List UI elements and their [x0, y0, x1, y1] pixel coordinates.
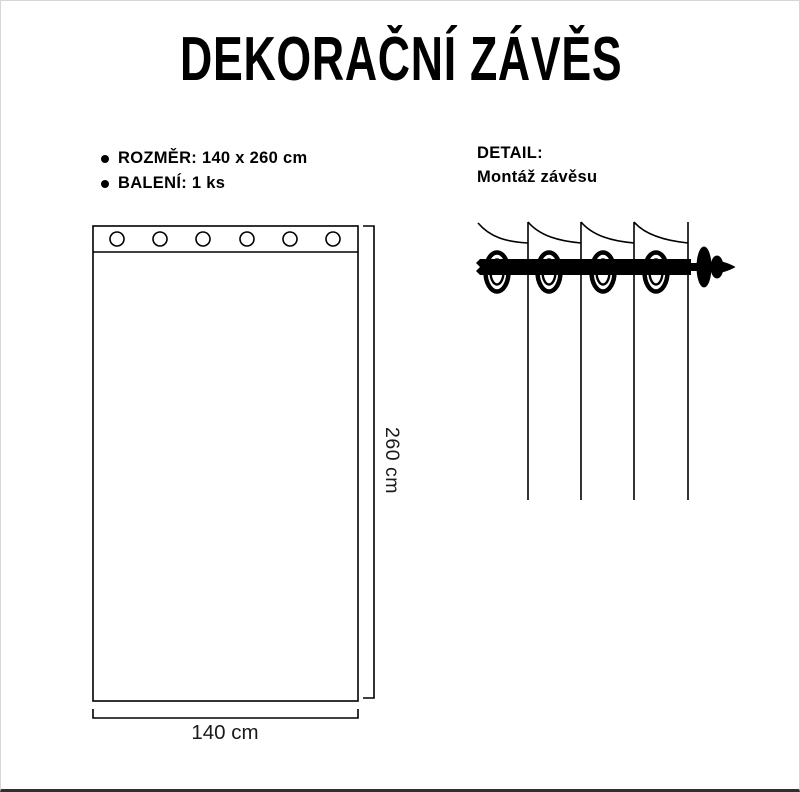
page-root: DEKORAČNÍ ZÁVĚS ROZMĚR: 140 x 260 cm BAL…	[0, 0, 800, 792]
grommet-hole-icon	[283, 232, 297, 246]
curtain-wave-segment	[634, 222, 688, 243]
width-dimension-bracket	[93, 709, 358, 718]
detail-heading-block: DETAIL: Montáž závěsu	[477, 144, 597, 187]
detail-heading: DETAIL:	[477, 144, 597, 163]
page-title-text: DEKORAČNÍ ZÁVĚS	[180, 27, 622, 93]
height-dimension-label: 260 cm	[380, 427, 403, 494]
grommet-hole-icon	[326, 232, 340, 246]
grommet-hole-icon	[110, 232, 124, 246]
detail-subheading: Montáž závěsu	[477, 168, 597, 187]
width-dimension-label: 140 cm	[145, 721, 305, 745]
spec-item-size: ROZMĚR: 140 x 260 cm	[101, 146, 307, 171]
curtain-diagram	[81, 216, 401, 756]
curtain-wave-segment	[528, 222, 581, 243]
page-title: DEKORAČNÍ ZÁVĚS	[1, 27, 800, 93]
grommet-hole-icon	[153, 232, 167, 246]
specs-list: ROZMĚR: 140 x 260 cm BALENÍ: 1 ks	[101, 146, 307, 196]
rod-end-finial-icon	[689, 247, 736, 288]
grommet-hole-icon	[240, 232, 254, 246]
grommet-hole-icon	[196, 232, 210, 246]
bullet-icon	[101, 155, 109, 163]
bullet-icon	[101, 180, 109, 188]
curtain-wave-edge	[478, 222, 688, 243]
curtain-outline	[93, 226, 358, 701]
curtain-wave-segment	[478, 223, 528, 243]
height-dimension-bracket	[363, 226, 374, 698]
curtain-wave-segment	[581, 222, 634, 243]
spec-item-packaging: BALENÍ: 1 ks	[101, 171, 307, 196]
mounting-detail-illustration	[461, 213, 751, 508]
spec-label-packaging: BALENÍ: 1 ks	[118, 174, 225, 193]
spec-label-size: ROZMĚR: 140 x 260 cm	[118, 149, 307, 168]
